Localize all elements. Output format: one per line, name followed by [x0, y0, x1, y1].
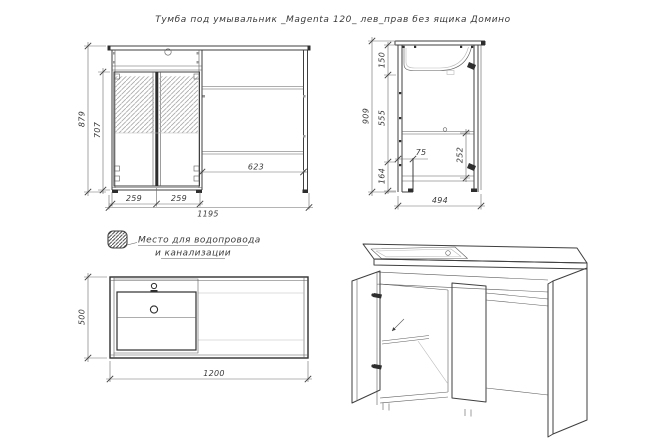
side-dim-top: 150: [378, 52, 387, 68]
faucet-hole: [151, 283, 156, 288]
front-dim-total-width: 1195: [197, 210, 219, 219]
legend: Место для водопровода и канализации: [108, 231, 261, 259]
side-dim-middle: 555: [378, 110, 387, 126]
iso-shelf-arrow: [392, 319, 404, 331]
plumbing-hatch-icon: [108, 231, 127, 248]
side-dim-bottom: 164: [378, 168, 387, 184]
plan-dim-depth: 500: [78, 309, 87, 325]
iso-middle-door: [452, 283, 486, 402]
iso-faucet-hole: [446, 251, 451, 256]
side-dim-plinth: 75: [416, 148, 427, 157]
side-dim-shelf: 252: [456, 147, 465, 163]
front-view: 879 707 259 259 1195 623: [78, 42, 314, 219]
front-dim-interior-height: 707: [93, 121, 102, 138]
side-hinge-marks: [467, 62, 476, 171]
legend-line1: Место для водопровода: [138, 236, 261, 246]
iso-open-door: [352, 271, 380, 403]
sink-bowl: [117, 292, 196, 350]
iso-shelf: [382, 336, 429, 345]
side-view: 909 150 555 164 252 75 494: [362, 37, 486, 210]
side-dim-depth: 494: [432, 196, 448, 205]
plan-dim-width: 1200: [203, 369, 225, 378]
plan-view: 500 1200: [78, 273, 313, 382]
legend-line2: и канализации: [155, 249, 231, 259]
front-dim-total-height: 879: [78, 111, 87, 127]
plan-dimensions: 500 1200: [78, 273, 313, 382]
front-dim-open-section: 623: [248, 163, 264, 172]
shelf-pin: [443, 128, 447, 132]
iso-right-leg: [553, 268, 587, 434]
sheet-title: Тумба под умывальник _Magenta 120_ лев_п…: [155, 15, 511, 25]
plumbing-zone-hatch: [160, 76, 199, 133]
technical-drawing-sheet: Тумба под умывальник _Magenta 120_ лев_п…: [0, 0, 666, 444]
front-dim-door-left: 259: [126, 194, 142, 203]
front-dim-door-right: 259: [171, 194, 187, 203]
side-dim-total-height: 909: [362, 108, 371, 124]
sink-profile: [404, 47, 472, 71]
side-dimensions: 909 150 555 164 252 75 494: [362, 37, 486, 210]
drain-hole: [150, 306, 157, 313]
drain-mark: [447, 71, 454, 75]
plumbing-zone-hatch: [116, 76, 155, 133]
iso-view: [352, 244, 587, 437]
drawing-svg: Тумба под умывальник _Magenta 120_ лев_п…: [0, 0, 666, 444]
